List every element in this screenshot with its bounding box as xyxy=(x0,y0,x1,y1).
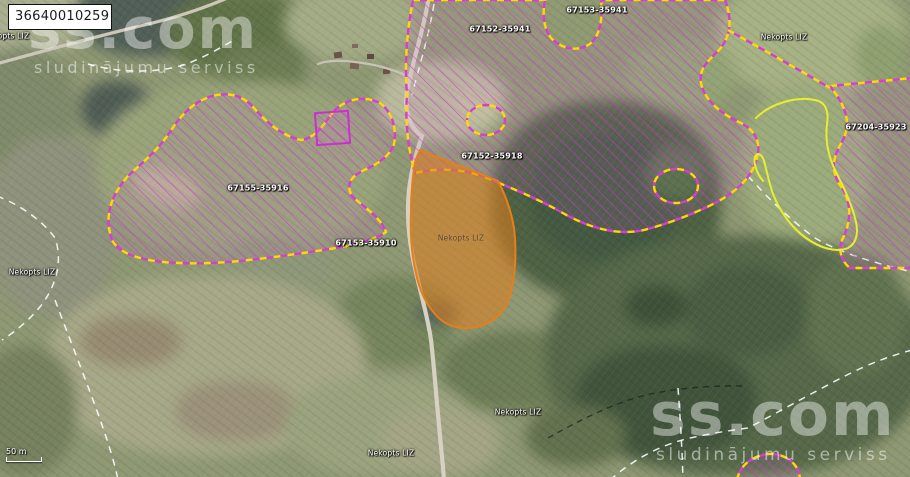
field-block-east xyxy=(830,78,910,268)
cadastral-number-box: 36640010259 xyxy=(8,4,112,30)
map-overlay xyxy=(0,0,910,477)
field-block-connector-line xyxy=(728,30,830,88)
map-canvas[interactable]: ss.com sludinājumu serviss ss.com sludin… xyxy=(0,0,910,477)
farm-buildings xyxy=(334,44,391,74)
road-track xyxy=(318,61,412,78)
small-parcel-rect xyxy=(315,111,350,145)
field-block-corner xyxy=(737,454,800,477)
field-block-west xyxy=(109,94,395,263)
